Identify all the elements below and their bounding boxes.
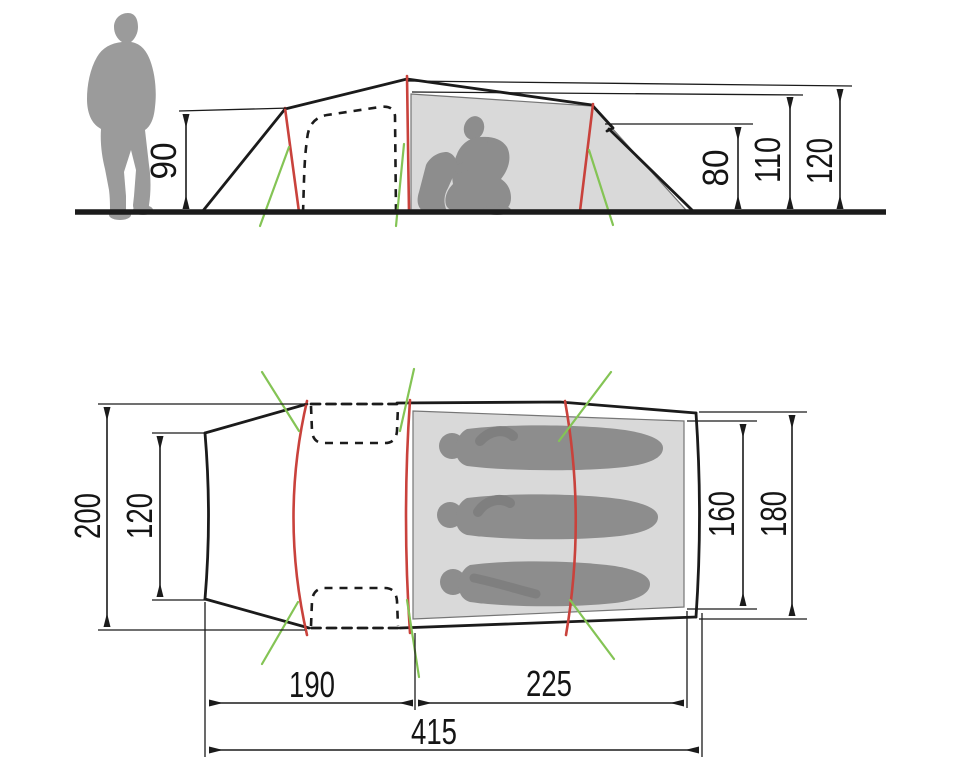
plan-front-bottom-slant	[205, 599, 309, 628]
dim-label-160: 160	[701, 491, 742, 537]
plan-top-edge	[397, 402, 696, 413]
dimension-vestibule-length: 190	[209, 664, 413, 705]
plan-right-edge	[696, 413, 700, 617]
dimension-front-width: 120	[119, 433, 206, 600]
diagram-canvas: 90 80 110 120	[0, 0, 960, 765]
plan-left-edge	[205, 433, 209, 599]
dim-label-120-plan: 120	[119, 493, 160, 539]
dim-label-80: 80	[695, 150, 736, 187]
pole-front	[285, 108, 299, 212]
dimension-inner-length: 225	[418, 663, 684, 704]
guy-line-middle-top	[400, 369, 414, 431]
dimension-outer-width: 200	[67, 404, 308, 630]
sleeping-person-1	[439, 425, 663, 470]
pole-arc-middle	[406, 400, 410, 633]
vestibule-door-top	[311, 406, 398, 443]
vestibule-door-bottom	[311, 588, 398, 626]
dim-label-90: 90	[143, 143, 184, 180]
tent-dimension-diagram: 90 80 110 120	[0, 0, 960, 765]
standing-person-silhouette	[87, 13, 156, 220]
dim-label-110: 110	[747, 137, 788, 183]
pole-arc-front	[294, 401, 308, 635]
dim-label-120: 120	[799, 138, 840, 184]
sleeping-person-3	[440, 561, 650, 606]
extension-line	[179, 108, 290, 111]
sleeping-person-2	[437, 494, 658, 539]
floor-plan-view: 200 120 160 180	[67, 369, 807, 757]
guy-line-front-bottom	[262, 602, 298, 664]
tent-ridge-line	[285, 79, 407, 109]
standing-person-body	[87, 13, 156, 218]
extension-line	[412, 92, 803, 95]
dim-label-190: 190	[289, 664, 335, 705]
guy-line-front-top	[262, 372, 299, 431]
dimension-total-length: 415	[209, 711, 699, 752]
dim-label-200: 200	[67, 493, 108, 539]
dim-label-415: 415	[411, 711, 457, 752]
dim-label-180: 180	[753, 491, 794, 537]
extension-line	[408, 81, 852, 86]
tent-front-slope	[202, 109, 285, 212]
plan-bottom-edge	[400, 617, 696, 628]
inner-tent-dashed-contour	[303, 107, 396, 213]
dim-label-225: 225	[526, 663, 572, 704]
side-elevation-view: 90 80 110 120	[75, 13, 886, 226]
pole-middle	[407, 76, 409, 212]
